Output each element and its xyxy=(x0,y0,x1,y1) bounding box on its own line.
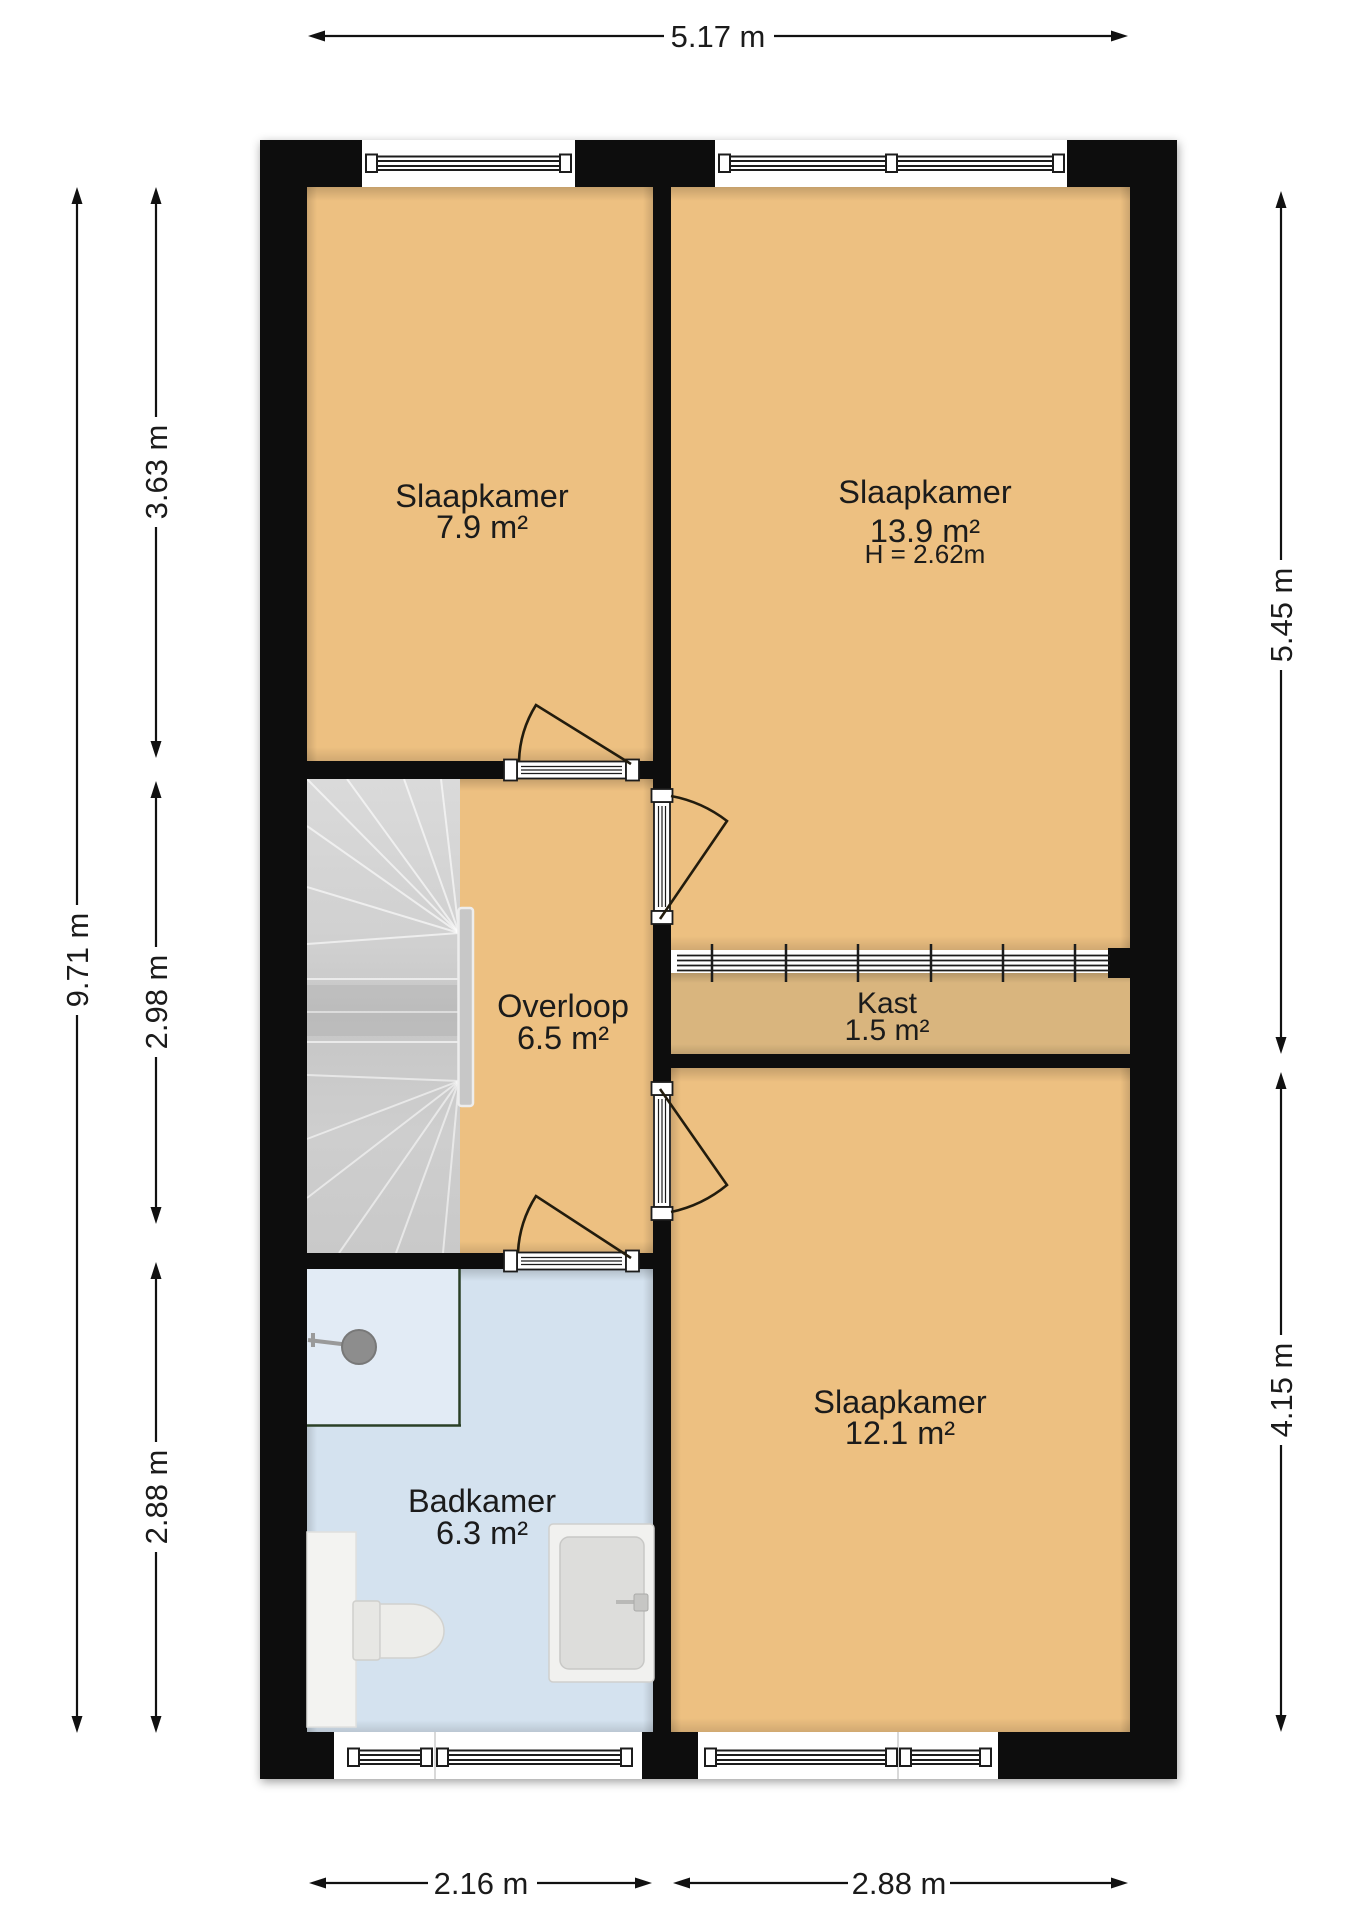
svg-text:Overloop: Overloop xyxy=(497,988,629,1024)
svg-text:Slaapkamer: Slaapkamer xyxy=(838,474,1012,510)
svg-text:2.88 m: 2.88 m xyxy=(852,1866,947,1901)
svg-text:H = 2.62m: H = 2.62m xyxy=(865,539,986,569)
svg-text:4.15 m: 4.15 m xyxy=(1264,1343,1299,1438)
svg-text:2.98 m: 2.98 m xyxy=(139,955,174,1050)
svg-text:5.45 m: 5.45 m xyxy=(1264,568,1299,663)
svg-text:3.63 m: 3.63 m xyxy=(139,425,174,520)
svg-text:7.9 m²: 7.9 m² xyxy=(436,509,528,545)
svg-text:6.3 m²: 6.3 m² xyxy=(436,1515,528,1551)
svg-text:1.5 m²: 1.5 m² xyxy=(844,1014,929,1047)
svg-text:12.1 m²: 12.1 m² xyxy=(845,1415,955,1451)
svg-text:6.5 m²: 6.5 m² xyxy=(517,1020,609,1056)
svg-text:9.71 m: 9.71 m xyxy=(60,913,95,1008)
svg-text:2.16 m: 2.16 m xyxy=(434,1866,529,1901)
svg-text:5.17 m: 5.17 m xyxy=(671,19,766,54)
svg-text:2.88 m: 2.88 m xyxy=(139,1450,174,1545)
svg-text:Badkamer: Badkamer xyxy=(408,1483,556,1519)
